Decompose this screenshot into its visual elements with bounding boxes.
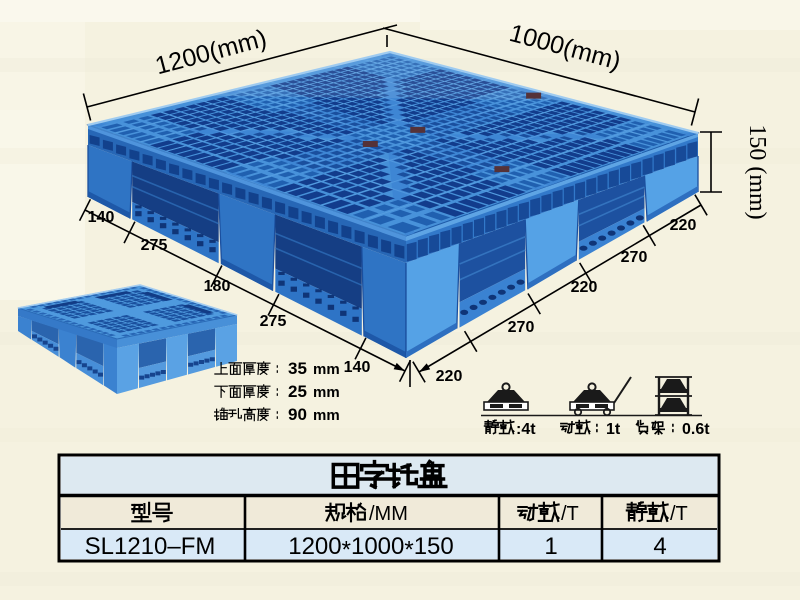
- svg-text:1200*1000*150: 1200*1000*150: [288, 533, 454, 564]
- svg-text:4: 4: [653, 533, 666, 560]
- svg-text:/MM: /MM: [369, 503, 408, 525]
- svg-text:SL1210–FM: SL1210–FM: [85, 533, 216, 560]
- svg-text:mm: mm: [313, 361, 340, 378]
- svg-text:275: 275: [260, 313, 287, 330]
- svg-text:90: 90: [288, 405, 307, 424]
- svg-text::4t: :4t: [516, 421, 536, 438]
- svg-text:270: 270: [621, 249, 648, 266]
- svg-text:140: 140: [88, 209, 115, 226]
- svg-text:25: 25: [288, 382, 307, 401]
- svg-text:150 (mm): 150 (mm): [744, 124, 770, 219]
- svg-text:270: 270: [508, 319, 535, 336]
- svg-text:35: 35: [288, 359, 307, 378]
- svg-text:140: 140: [344, 359, 371, 376]
- svg-text:1: 1: [544, 533, 557, 560]
- svg-text:/T: /T: [670, 503, 688, 525]
- svg-text:mm: mm: [313, 384, 340, 401]
- svg-text:220: 220: [670, 217, 697, 234]
- svg-text:220: 220: [436, 368, 463, 385]
- svg-text:220: 220: [571, 279, 598, 296]
- svg-text:275: 275: [141, 237, 168, 254]
- svg-text:180: 180: [204, 278, 231, 295]
- svg-text:/T: /T: [561, 503, 579, 525]
- svg-text:mm: mm: [313, 407, 340, 424]
- svg-text:1t: 1t: [606, 421, 621, 438]
- svg-text:0.6t: 0.6t: [682, 421, 710, 438]
